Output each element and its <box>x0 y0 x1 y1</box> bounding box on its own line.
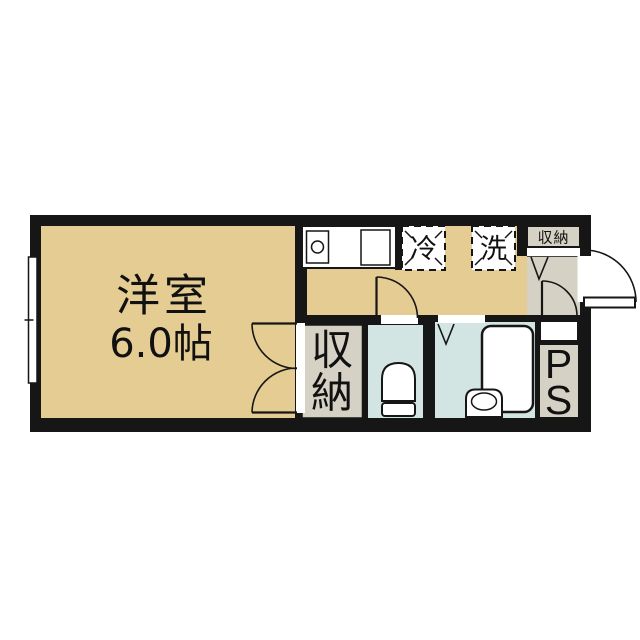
floorplan-svg: 収納 冷 洗 収 納 P S 洋 <box>0 0 640 640</box>
hall-passage-floor <box>517 253 527 315</box>
entrance-storage-opening <box>527 248 580 256</box>
washer-label: 洗 <box>480 234 507 265</box>
entry-door-wall-opening <box>578 256 592 302</box>
toilet-tank-icon <box>382 403 415 416</box>
toilet-bowl-icon <box>382 363 415 401</box>
entry-door-leaf <box>584 298 635 308</box>
toilet-door-opening <box>381 315 418 324</box>
floorplan-page: 収納 冷 洗 収 納 P S 洋 <box>0 0 640 640</box>
closet-label-char2: 納 <box>311 369 353 418</box>
entry-floor <box>527 256 580 315</box>
wall-stub-entry <box>517 215 527 256</box>
washbasin-bowl-icon <box>472 393 497 410</box>
entrance-storage-label: 収納 <box>537 229 569 247</box>
main-room-door-opening <box>296 323 305 413</box>
entry-step-box <box>540 321 578 341</box>
main-room-size: 6.0帖 <box>109 321 213 367</box>
kitchen-sink <box>361 230 390 265</box>
entry-door-arc <box>584 250 636 302</box>
fridge-label: 冷 <box>410 234 437 265</box>
closet-label-char1: 収 <box>311 326 353 375</box>
wall-stub-counter <box>395 215 402 270</box>
main-room-label: 洋室 <box>116 271 212 322</box>
pipe-space-letter-s: S <box>545 377 572 423</box>
stove-burner-box <box>307 231 329 263</box>
bath-door-opening <box>438 315 485 323</box>
